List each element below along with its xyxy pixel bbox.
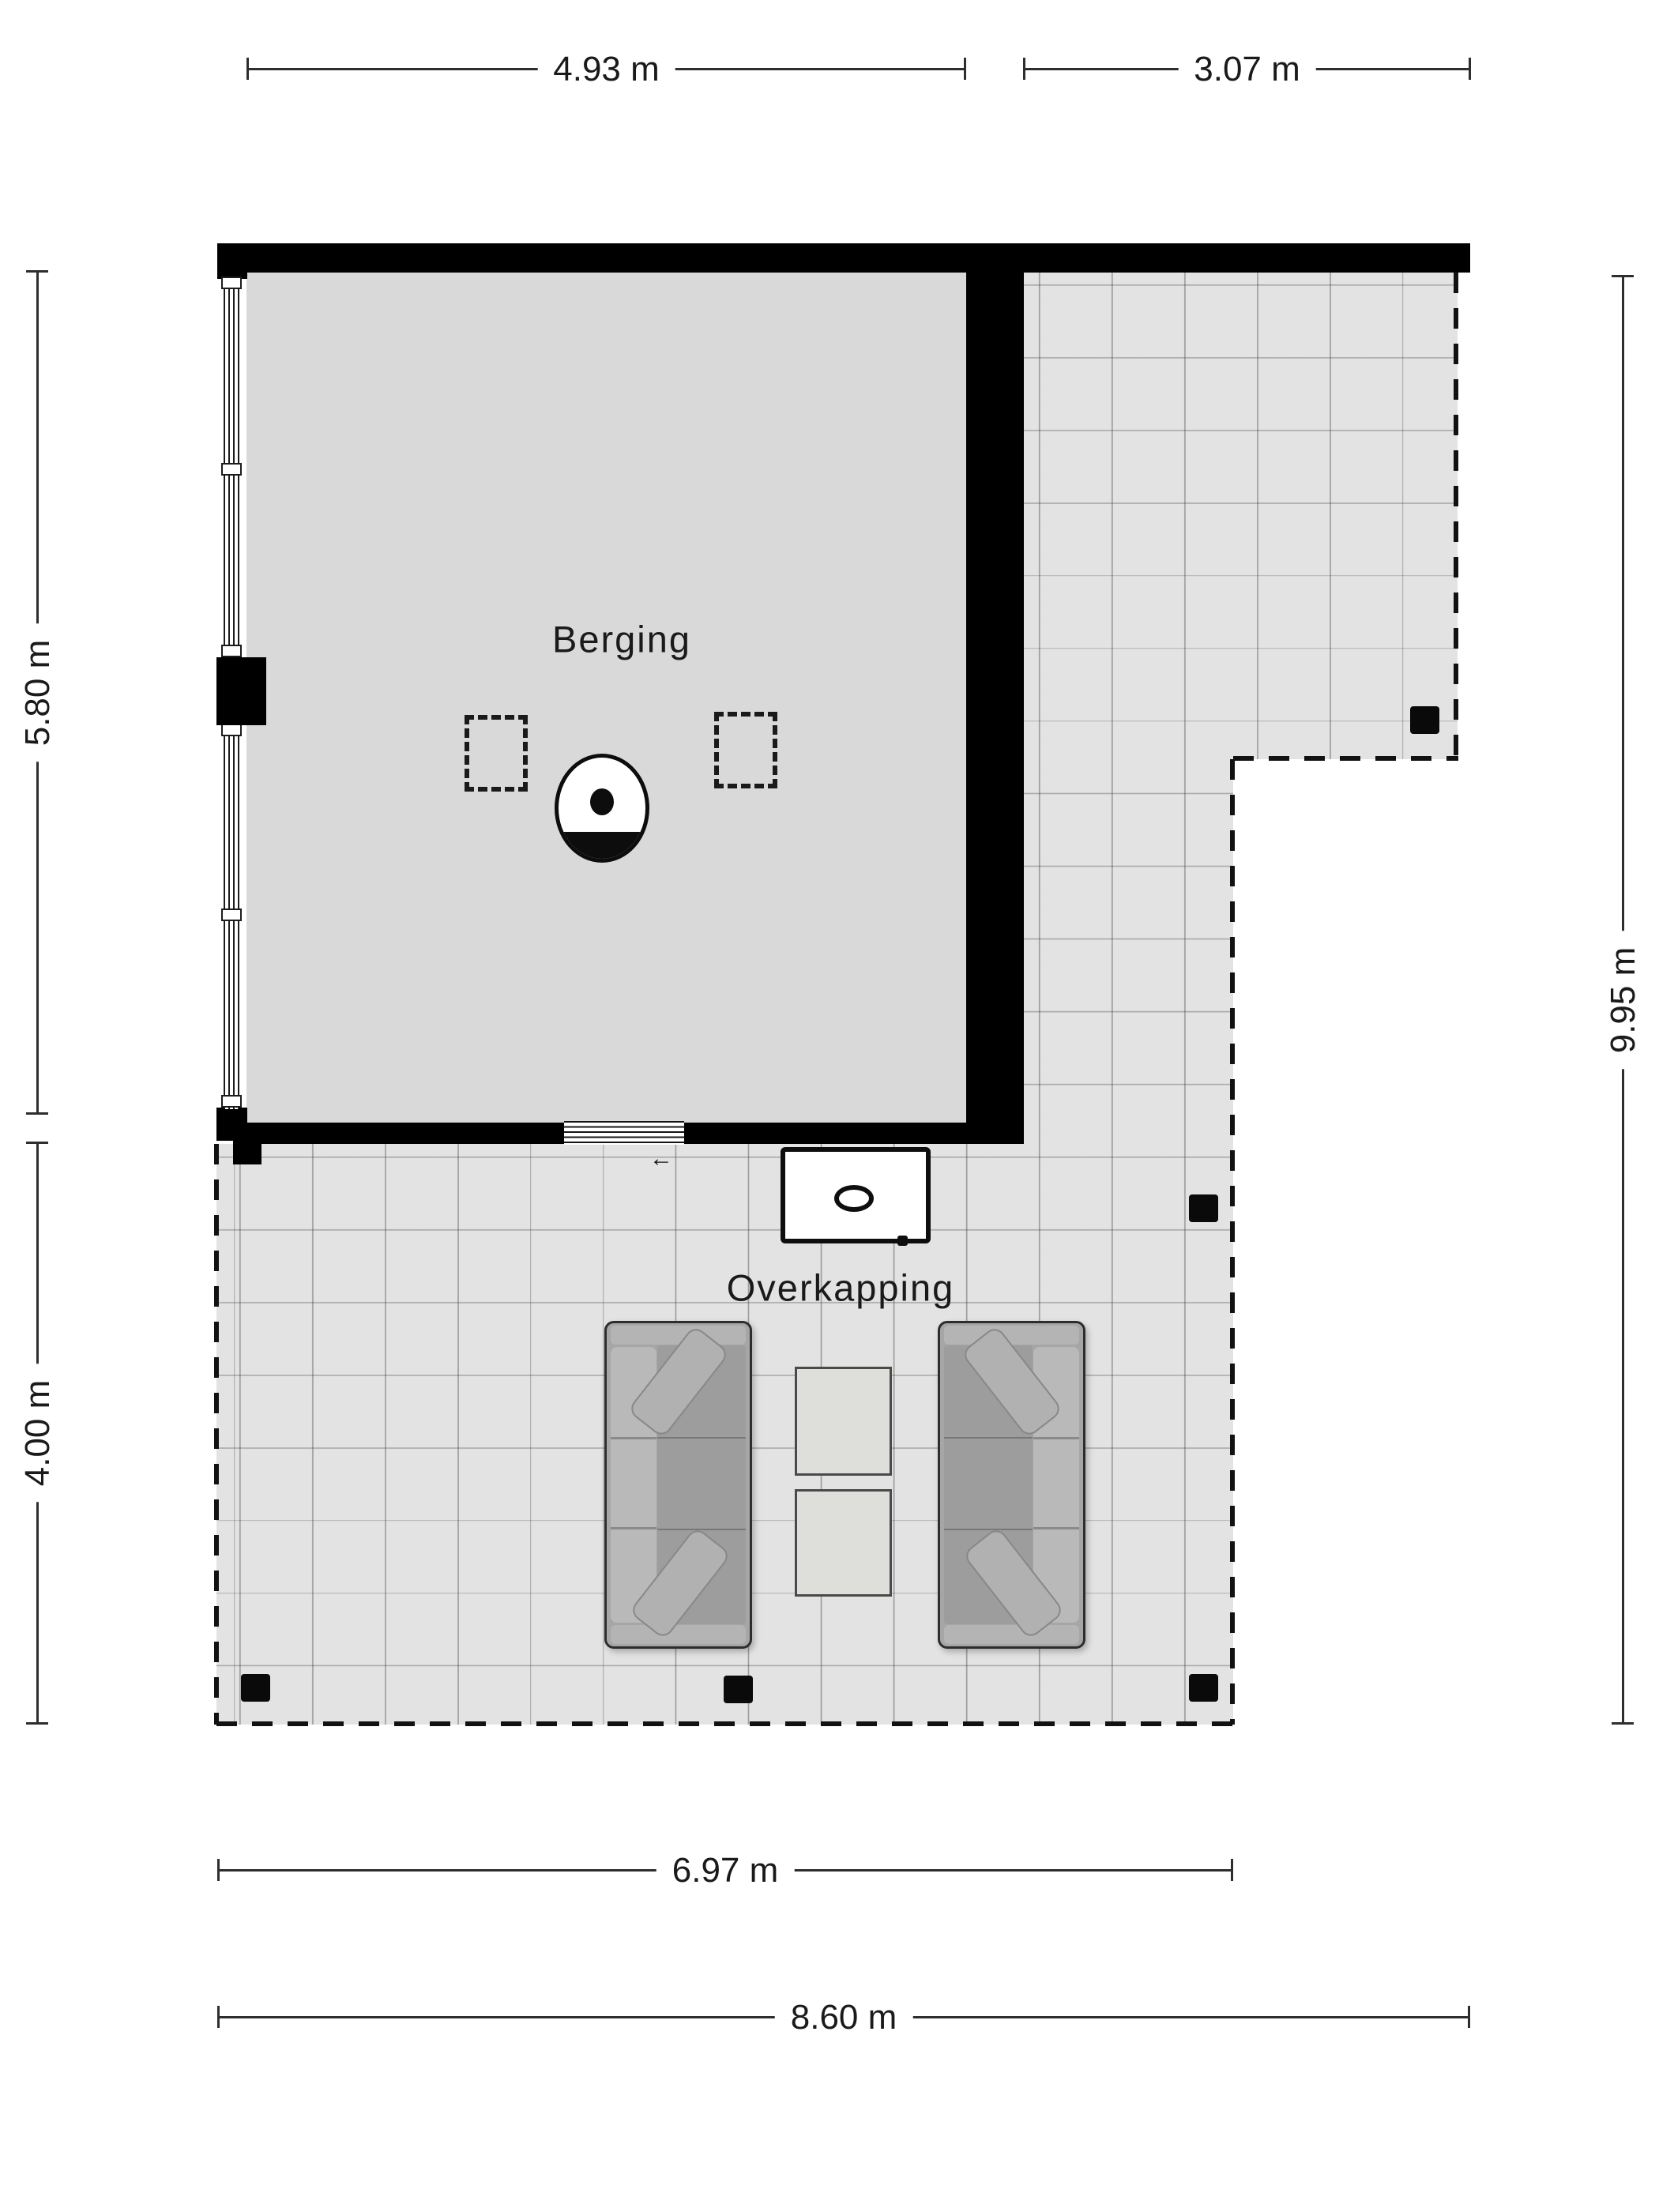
- dimension-tick: [964, 58, 966, 80]
- sofa-armrest: [611, 1625, 746, 1644]
- sofa-right: [938, 1321, 1085, 1649]
- sofa-armrest: [944, 1326, 1079, 1345]
- dimension-tick: [1469, 58, 1471, 80]
- dimension-tick: [1231, 1859, 1233, 1881]
- window-sill: [221, 908, 242, 921]
- dimension-top-2: 3.07 m: [1023, 68, 1471, 70]
- canopy-post: [1189, 1674, 1218, 1702]
- floor-plan-canvas: ← Berging Overkapping: [0, 0, 1659, 2212]
- dimension-tick: [1023, 58, 1025, 80]
- window-sill: [221, 276, 242, 289]
- room-label-berging: Berging: [552, 618, 691, 661]
- dimension-label: 8.60 m: [775, 1996, 913, 2039]
- dimension-tick: [26, 270, 48, 273]
- door-direction-arrow: ←: [649, 1145, 673, 1172]
- dimension-left-2: 4.00 m: [36, 1142, 39, 1725]
- dimension-bottom-1: 6.97 m: [217, 1869, 1233, 1872]
- window-sill: [221, 463, 242, 476]
- dimension-top-1: 4.93 m: [246, 68, 966, 70]
- room-label-overkapping: Overkapping: [727, 1266, 955, 1310]
- dimension-left-1: 5.80 m: [36, 270, 39, 1115]
- wall-bottom-left-segment: [246, 1123, 564, 1144]
- sofa-left: [604, 1321, 752, 1649]
- dimension-bottom-2: 8.60 m: [217, 2016, 1470, 2018]
- canopy-post: [724, 1676, 753, 1703]
- door-left-block: [216, 657, 266, 725]
- side-table: [781, 1147, 931, 1243]
- stove-flue-dot: [590, 788, 614, 815]
- sliding-door-opening: [564, 1121, 684, 1145]
- wall-top: [217, 243, 1470, 273]
- skylight-dashed-square: [465, 715, 528, 792]
- sofa-armrest: [944, 1625, 1079, 1644]
- dimension-label: 3.07 m: [1178, 48, 1316, 91]
- terrace-boundary-bottom: [216, 1721, 1235, 1726]
- canopy-post: [241, 1674, 270, 1702]
- dimension-tick: [26, 1142, 48, 1144]
- dimension-label: 4.93 m: [537, 48, 675, 91]
- wall-bottom-left-corner-block: [216, 1108, 247, 1141]
- dimension-label: 4.00 m: [17, 1364, 59, 1503]
- terrace-boundary-right-lower: [1230, 759, 1235, 1725]
- dimension-tick: [1468, 2006, 1470, 2028]
- terrace-boundary-right-upper: [1454, 273, 1458, 762]
- canopy-post: [1410, 706, 1439, 734]
- coffee-table: [795, 1489, 892, 1597]
- dimension-tick: [217, 1859, 220, 1881]
- wall-corner-foot: [233, 1140, 261, 1164]
- window-sill: [221, 1095, 242, 1108]
- terrace-boundary-left: [214, 1144, 219, 1725]
- window-sill: [221, 645, 242, 657]
- dimension-label: 5.80 m: [17, 623, 59, 762]
- wall-right: [966, 273, 1024, 1144]
- berging-floor: [246, 273, 966, 1123]
- skylight-dashed-square: [714, 712, 777, 788]
- dimension-label: 6.97 m: [656, 1849, 795, 1892]
- dimension-tick: [1612, 1722, 1634, 1725]
- dimension-tick: [26, 1722, 48, 1725]
- dimension-right: 9.95 m: [1622, 275, 1624, 1725]
- side-table-foot: [897, 1236, 908, 1246]
- dimension-tick: [1612, 275, 1634, 277]
- side-table-bowl: [834, 1185, 874, 1212]
- dimension-label: 9.95 m: [1602, 931, 1645, 1069]
- dimension-tick: [217, 2006, 220, 2028]
- stove-icon: [555, 754, 649, 863]
- dimension-tick: [246, 58, 249, 80]
- wall-top-left-corner-block: [217, 243, 247, 279]
- terrace-boundary-notch: [1233, 756, 1458, 761]
- window-sill: [221, 724, 242, 736]
- coffee-table: [795, 1367, 892, 1476]
- wall-bottom-right-segment: [684, 1123, 1024, 1144]
- dimension-tick: [26, 1112, 48, 1115]
- sofa-armrest: [611, 1326, 746, 1345]
- canopy-post: [1189, 1194, 1218, 1222]
- stove-ash-pan: [555, 832, 649, 859]
